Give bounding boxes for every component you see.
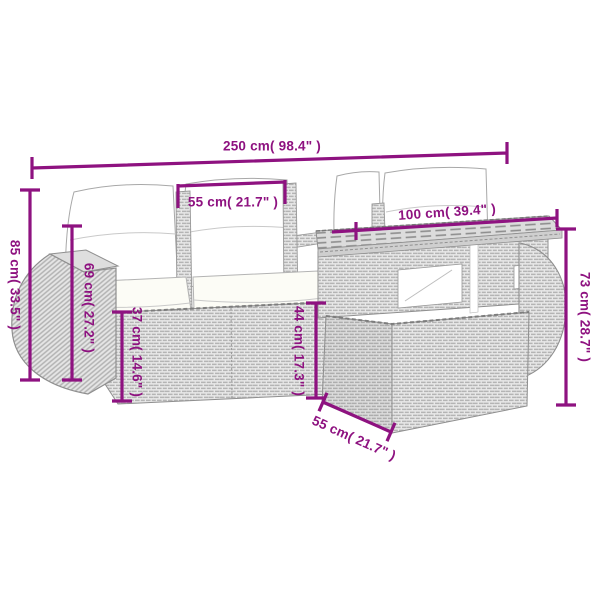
dim-backrest-height-label: 69 cm( 27.2" ): [82, 263, 97, 353]
dim-total-width-label: 250 cm( 98.4" ): [223, 139, 321, 154]
dim-seat-cushion-height-label: 44 cm( 17.3" ): [292, 306, 307, 396]
table: [316, 216, 566, 433]
dim-cushion-width-label: 55 cm( 21.7" ): [188, 195, 278, 210]
dim-table-height-label: 73 cm( 28.7" ): [578, 272, 593, 362]
sofa-armrest: [12, 250, 118, 394]
product-dimension-diagram: 250 cm( 98.4" ) 55 cm( 21.7" ) 100 cm( 3…: [0, 0, 600, 600]
dim-sofa-height-label: 85 cm( 33.5" ): [8, 240, 23, 330]
dim-seat-height-label: 37 cm( 14.6" ): [130, 307, 145, 397]
